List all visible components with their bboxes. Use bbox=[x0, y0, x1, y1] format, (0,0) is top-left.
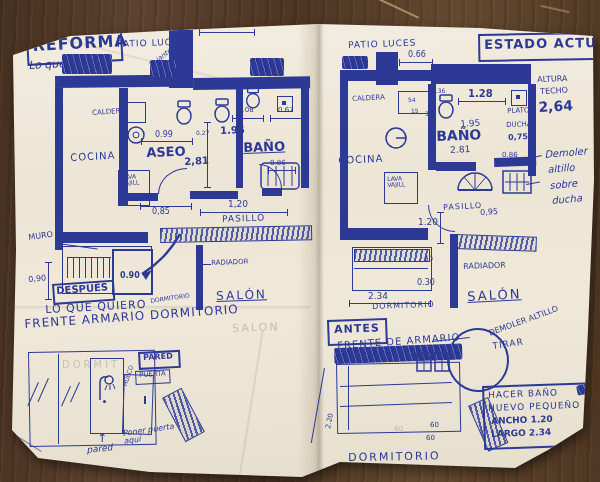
dim-line bbox=[48, 262, 49, 300]
chimney-shaft bbox=[376, 52, 398, 85]
dim-wc4: 30 bbox=[425, 111, 433, 117]
wall-segment bbox=[450, 234, 458, 308]
toilet-icon bbox=[174, 100, 194, 126]
closet-hatch bbox=[354, 249, 430, 262]
diagonal-crease bbox=[238, 331, 263, 479]
radiador-label: RADIADOR bbox=[211, 259, 249, 268]
dim-aseo-w: 0.99 bbox=[155, 131, 173, 139]
dim-window: 0.67 bbox=[278, 107, 294, 114]
altura-label: ALTURA bbox=[537, 75, 568, 84]
patio-structure bbox=[342, 56, 368, 69]
dim-line bbox=[497, 163, 529, 164]
wall-segment bbox=[55, 88, 63, 250]
room-label-salon-pencil: SALON bbox=[232, 321, 280, 334]
dim-line bbox=[200, 212, 288, 213]
antes-tag: ANTES bbox=[334, 322, 380, 335]
toilet-icon bbox=[212, 98, 232, 124]
dishwasher-label: LAVAVAJILL bbox=[387, 175, 405, 188]
room-label-pasillo: PASILLO bbox=[222, 213, 265, 224]
dim-b: 60 bbox=[426, 435, 435, 442]
wall-segment bbox=[340, 70, 376, 81]
dim-line bbox=[399, 62, 433, 63]
dim-dorm: 2.34 bbox=[368, 292, 388, 301]
dormitorio-label: DORMITORIO bbox=[348, 450, 441, 463]
dim-bano-w: 1.95 bbox=[460, 119, 481, 130]
room-label-dormitorio: DORMITORIO bbox=[372, 301, 435, 312]
dim-line bbox=[199, 32, 255, 33]
room-label-dormitorio-small: DORMITORIO bbox=[150, 293, 190, 305]
dim-line bbox=[268, 170, 296, 171]
panel-line bbox=[58, 354, 59, 444]
dim-muro: 0,90 bbox=[28, 274, 46, 284]
wall-segment bbox=[340, 228, 428, 240]
patio-structure bbox=[150, 60, 176, 77]
dim-plato: 0,75 bbox=[508, 133, 528, 142]
room-label-aseo: ASEO bbox=[146, 145, 186, 160]
altura-value: 2,64 bbox=[538, 98, 573, 114]
room-label-pasillo: PASILLO bbox=[443, 202, 483, 212]
patio-structure bbox=[62, 54, 112, 74]
caldera-label: CALDERA bbox=[352, 94, 385, 103]
cabinet-grid-icon bbox=[416, 352, 450, 372]
patio-structure bbox=[250, 58, 284, 76]
dim-patio: 0.66 bbox=[408, 51, 426, 59]
tirar-label: TIRAR bbox=[492, 338, 524, 352]
perspective-line bbox=[311, 368, 325, 443]
closet-shelf-line bbox=[354, 268, 428, 269]
radiador-label: RADIADOR bbox=[463, 262, 506, 272]
wall-segment bbox=[301, 88, 309, 188]
demoler-note: ducha bbox=[551, 193, 582, 206]
plato-label: PLATO bbox=[507, 107, 530, 115]
closet-hangers bbox=[67, 257, 111, 278]
dim-line bbox=[458, 101, 506, 102]
room-label-salon: SALÓN bbox=[467, 287, 522, 303]
wall-segment bbox=[236, 88, 243, 188]
dim-bano-top: 1.28 bbox=[468, 89, 493, 100]
dim-pasillo: 0,95 bbox=[480, 208, 498, 217]
dim-depth: 2,81 bbox=[184, 156, 209, 168]
pen-scribble-icon bbox=[576, 383, 591, 395]
photo-of-sketch: REFORMA Lo que quiero PATIO LUCES bajant… bbox=[0, 0, 600, 482]
dim-pencil: .60 bbox=[392, 426, 403, 433]
puerta-box-label: PUERTA bbox=[139, 371, 166, 380]
pared-box-label: PARED bbox=[143, 352, 173, 362]
dim-bano-top: 1.08 bbox=[238, 107, 254, 114]
boiler-icon bbox=[384, 126, 408, 150]
demoler-note: sobre bbox=[549, 179, 578, 192]
patio-luces-label: PATIO LUCES bbox=[348, 39, 417, 51]
estado-actual-title: ESTADO ACTUAL bbox=[484, 36, 600, 52]
toilet-icon bbox=[436, 94, 456, 120]
wall-segment bbox=[398, 70, 431, 81]
side-panel-line bbox=[348, 366, 349, 430]
room-label-bano: BAÑO bbox=[436, 127, 482, 143]
caldera-box bbox=[127, 102, 146, 123]
hatched-wall bbox=[454, 234, 536, 252]
dim-pas1: 0,85 bbox=[152, 208, 170, 216]
arrow-icon bbox=[128, 230, 184, 286]
ducha-label: DUCHA bbox=[506, 121, 532, 129]
dim-line bbox=[141, 141, 193, 142]
techo-label: TECHO bbox=[540, 87, 568, 97]
room-label-cocina: COCINA bbox=[70, 151, 116, 164]
shower-drain bbox=[516, 95, 520, 99]
demoler-altillo-label: DEMOLER ALTILLO bbox=[488, 305, 559, 338]
cabin-knob bbox=[103, 400, 106, 403]
room-label-bano: BAÑO bbox=[243, 140, 285, 155]
dim-tub: 0.86 bbox=[502, 152, 518, 159]
wall-segment bbox=[428, 84, 436, 170]
wall-segment bbox=[196, 245, 203, 310]
wall-segment bbox=[190, 191, 238, 199]
wall-block bbox=[431, 64, 531, 84]
dim-line bbox=[440, 212, 441, 244]
dim-tub: 0.86 bbox=[270, 160, 286, 167]
shower-fan-icon bbox=[456, 164, 494, 192]
demoler-note: Demoler bbox=[544, 146, 588, 160]
dim-depth: 2.81 bbox=[450, 145, 471, 155]
dim-pas2: 1,20 bbox=[228, 200, 248, 209]
dim-bano-w: 1.95 bbox=[220, 125, 245, 136]
demoler-note: altillo bbox=[547, 163, 575, 176]
dim-pass-v: 1.20 bbox=[418, 218, 438, 227]
dim-top: 1.20 bbox=[218, 21, 236, 29]
door-swing bbox=[158, 168, 187, 194]
dim-line bbox=[270, 118, 304, 119]
shower-head-icon bbox=[94, 372, 120, 404]
sketch-paper: REFORMA Lo que quiero PATIO LUCES bajant… bbox=[0, 0, 600, 482]
wardrobe-body bbox=[336, 362, 461, 434]
dishwasher-label: LAVAVAJILL bbox=[121, 173, 139, 186]
radiator-icon bbox=[502, 170, 532, 194]
pared-label: pared bbox=[86, 443, 113, 455]
door-handle bbox=[144, 396, 146, 404]
shower-drain bbox=[282, 101, 286, 105]
chimney-shaft bbox=[169, 30, 193, 88]
dim-wc2: 54 bbox=[408, 97, 416, 103]
dim-line bbox=[232, 118, 264, 119]
radiador-arrow-line bbox=[203, 264, 211, 265]
sink-icon bbox=[126, 125, 146, 145]
dim-alto: 2.20 bbox=[325, 413, 335, 430]
muro-label: MURO bbox=[28, 231, 54, 243]
dim-wc3: 15 bbox=[411, 108, 419, 114]
room-label-salon: SALÓN bbox=[216, 288, 267, 302]
dim-a: 60 bbox=[430, 422, 439, 429]
room-label-cocina: COCINA bbox=[338, 154, 384, 167]
